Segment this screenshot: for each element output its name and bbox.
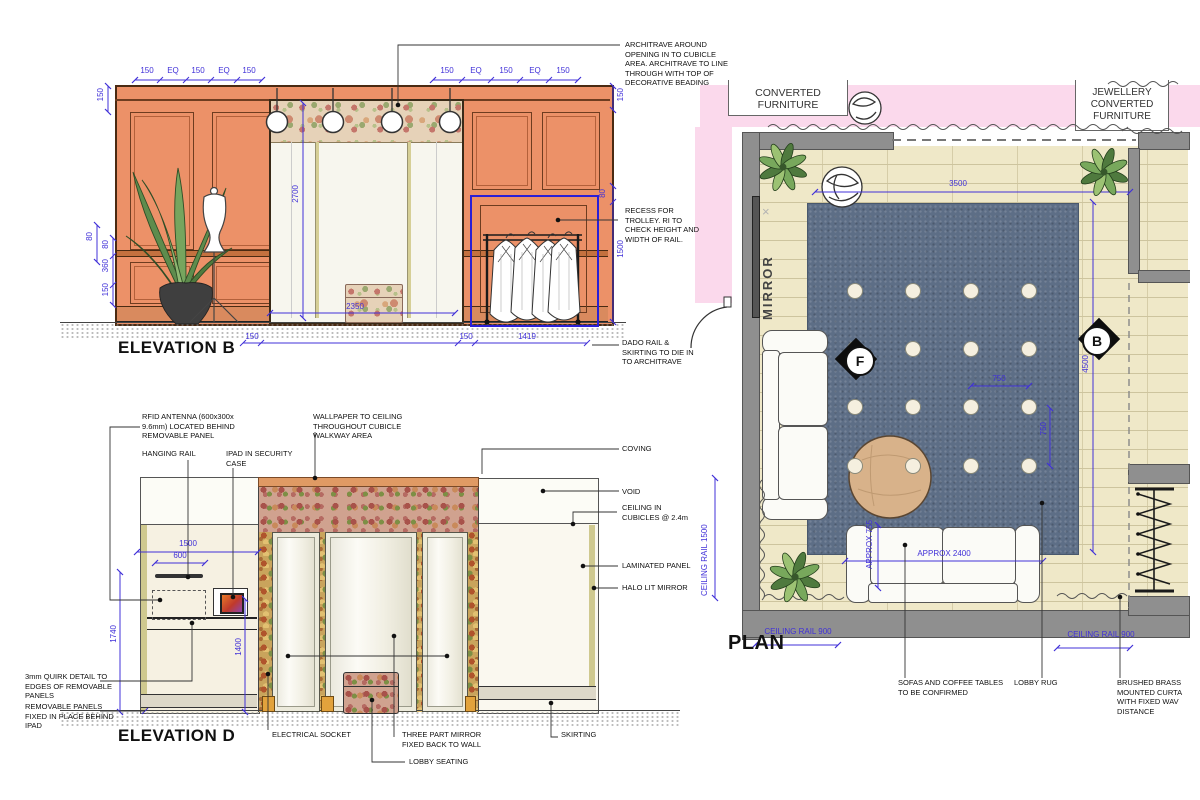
ornament-icon — [822, 92, 881, 207]
dim-label: 80 — [85, 232, 94, 241]
note-hanging-rail: HANGING RAIL — [142, 449, 196, 459]
note-three-part: THREE PART MIRROR FIXED BACK TO WALL — [402, 730, 507, 749]
dim-label: 150 — [494, 66, 518, 75]
note-recess: RECESS FOR TROLLEY. RI TO CHECK HEIGHT A… — [625, 206, 730, 244]
note-quirk: 3mm QUIRK DETAIL TO EDGES OF REMOVABLE P… — [25, 672, 140, 701]
note-wallpaper: WALLPAPER TO CEILING THROUGHOUT CUBICLE … — [313, 412, 428, 441]
note-sofas: SOFAS AND COFFEE TABLES TO BE CONFIRMED — [898, 678, 1013, 697]
dim-label: APPROX 755 — [865, 520, 874, 569]
dim-label: 750 — [1039, 422, 1048, 435]
dim-label: 150 — [454, 332, 478, 341]
dim-label: 1500 — [616, 240, 625, 258]
marker-letter: B — [1082, 326, 1112, 356]
dim-label: 750 — [984, 374, 1014, 383]
note-lobby-seating: LOBBY SEATING — [409, 757, 468, 767]
dim-label: 1419 — [509, 332, 545, 341]
drawing-sheet: MIRROR × CONVERTED FURNITURE JEWELLERY C… — [0, 0, 1200, 800]
dim-label: 1740 — [109, 625, 118, 643]
dim-label: 360 — [101, 259, 110, 272]
note-lobby-rug: LOBBY RUG — [1014, 678, 1058, 688]
note-coving: COVING — [622, 444, 652, 454]
elevation-d-title: ELEVATION D — [118, 726, 235, 746]
dim-label: CEILING RAIL 1500 — [700, 482, 709, 596]
dim-label: 150 — [551, 66, 575, 75]
note-socket: ELECTRICAL SOCKET — [272, 730, 351, 740]
elevation-b-title: ELEVATION B — [118, 338, 235, 358]
dim-label: 150 — [237, 66, 261, 75]
note-architrave: ARCHITRAVE AROUND OPENING IN TO CUBICLE … — [625, 40, 750, 88]
coffee-table — [849, 436, 931, 518]
dim-label: 80 — [598, 189, 607, 198]
pendant-light-icon — [267, 88, 461, 133]
note-ipad: IPAD IN SECURITY CASE — [226, 449, 316, 468]
plant-icon — [758, 142, 808, 192]
dim-label: 150 — [240, 332, 264, 341]
dim-label: 4500 — [1081, 355, 1090, 373]
note-dado: DADO RAIL & SKIRTING TO DIE IN TO ARCHIT… — [622, 338, 727, 367]
plan-title: PLAN — [728, 632, 784, 655]
dim-label: 150 — [96, 88, 105, 101]
dim-label: 1400 — [234, 638, 243, 656]
dimension-lines — [97, 77, 1130, 714]
dim-label: CEILING RAIL 900 — [1059, 630, 1143, 639]
elevation-marker-f: F — [833, 337, 877, 381]
dim-label: 80 — [101, 240, 110, 249]
dim-label: APPROX 2400 — [901, 549, 987, 558]
dim-label: 600 — [166, 551, 194, 560]
dim-label: EQ — [523, 66, 547, 75]
note-rfid: RFID ANTENNA (600x300x 9.6mm) LOCATED BE… — [142, 412, 267, 441]
dim-label: 3500 — [938, 179, 978, 188]
marker-letter: F — [845, 346, 875, 376]
dim-label: 150 — [616, 88, 625, 101]
note-laminated: LAMINATED PANEL — [622, 561, 691, 571]
note-halo: HALO LIT MIRROR — [622, 583, 688, 593]
clothes-rack-icon — [483, 232, 582, 325]
dim-label: 1500 — [170, 539, 206, 548]
dim-label: 150 — [135, 66, 159, 75]
dim-label: 150 — [435, 66, 459, 75]
dim-label: EQ — [464, 66, 488, 75]
dim-label: 150 — [101, 283, 110, 296]
dim-label: EQ — [212, 66, 236, 75]
note-void: VOID — [622, 487, 640, 497]
plant-icon — [1079, 147, 1129, 197]
plant-icon — [769, 551, 822, 604]
dim-label: 2350 — [335, 302, 375, 311]
dim-label: 2700 — [291, 185, 300, 203]
note-skirting: SKIRTING — [561, 730, 596, 740]
wall-mirror-label: MIRROR — [760, 205, 775, 320]
note-curtain: BRUSHED BRASS MOUNTED CURTA WITH FIXED W… — [1117, 678, 1200, 716]
dim-label: 150 — [186, 66, 210, 75]
dim-label: EQ — [161, 66, 185, 75]
